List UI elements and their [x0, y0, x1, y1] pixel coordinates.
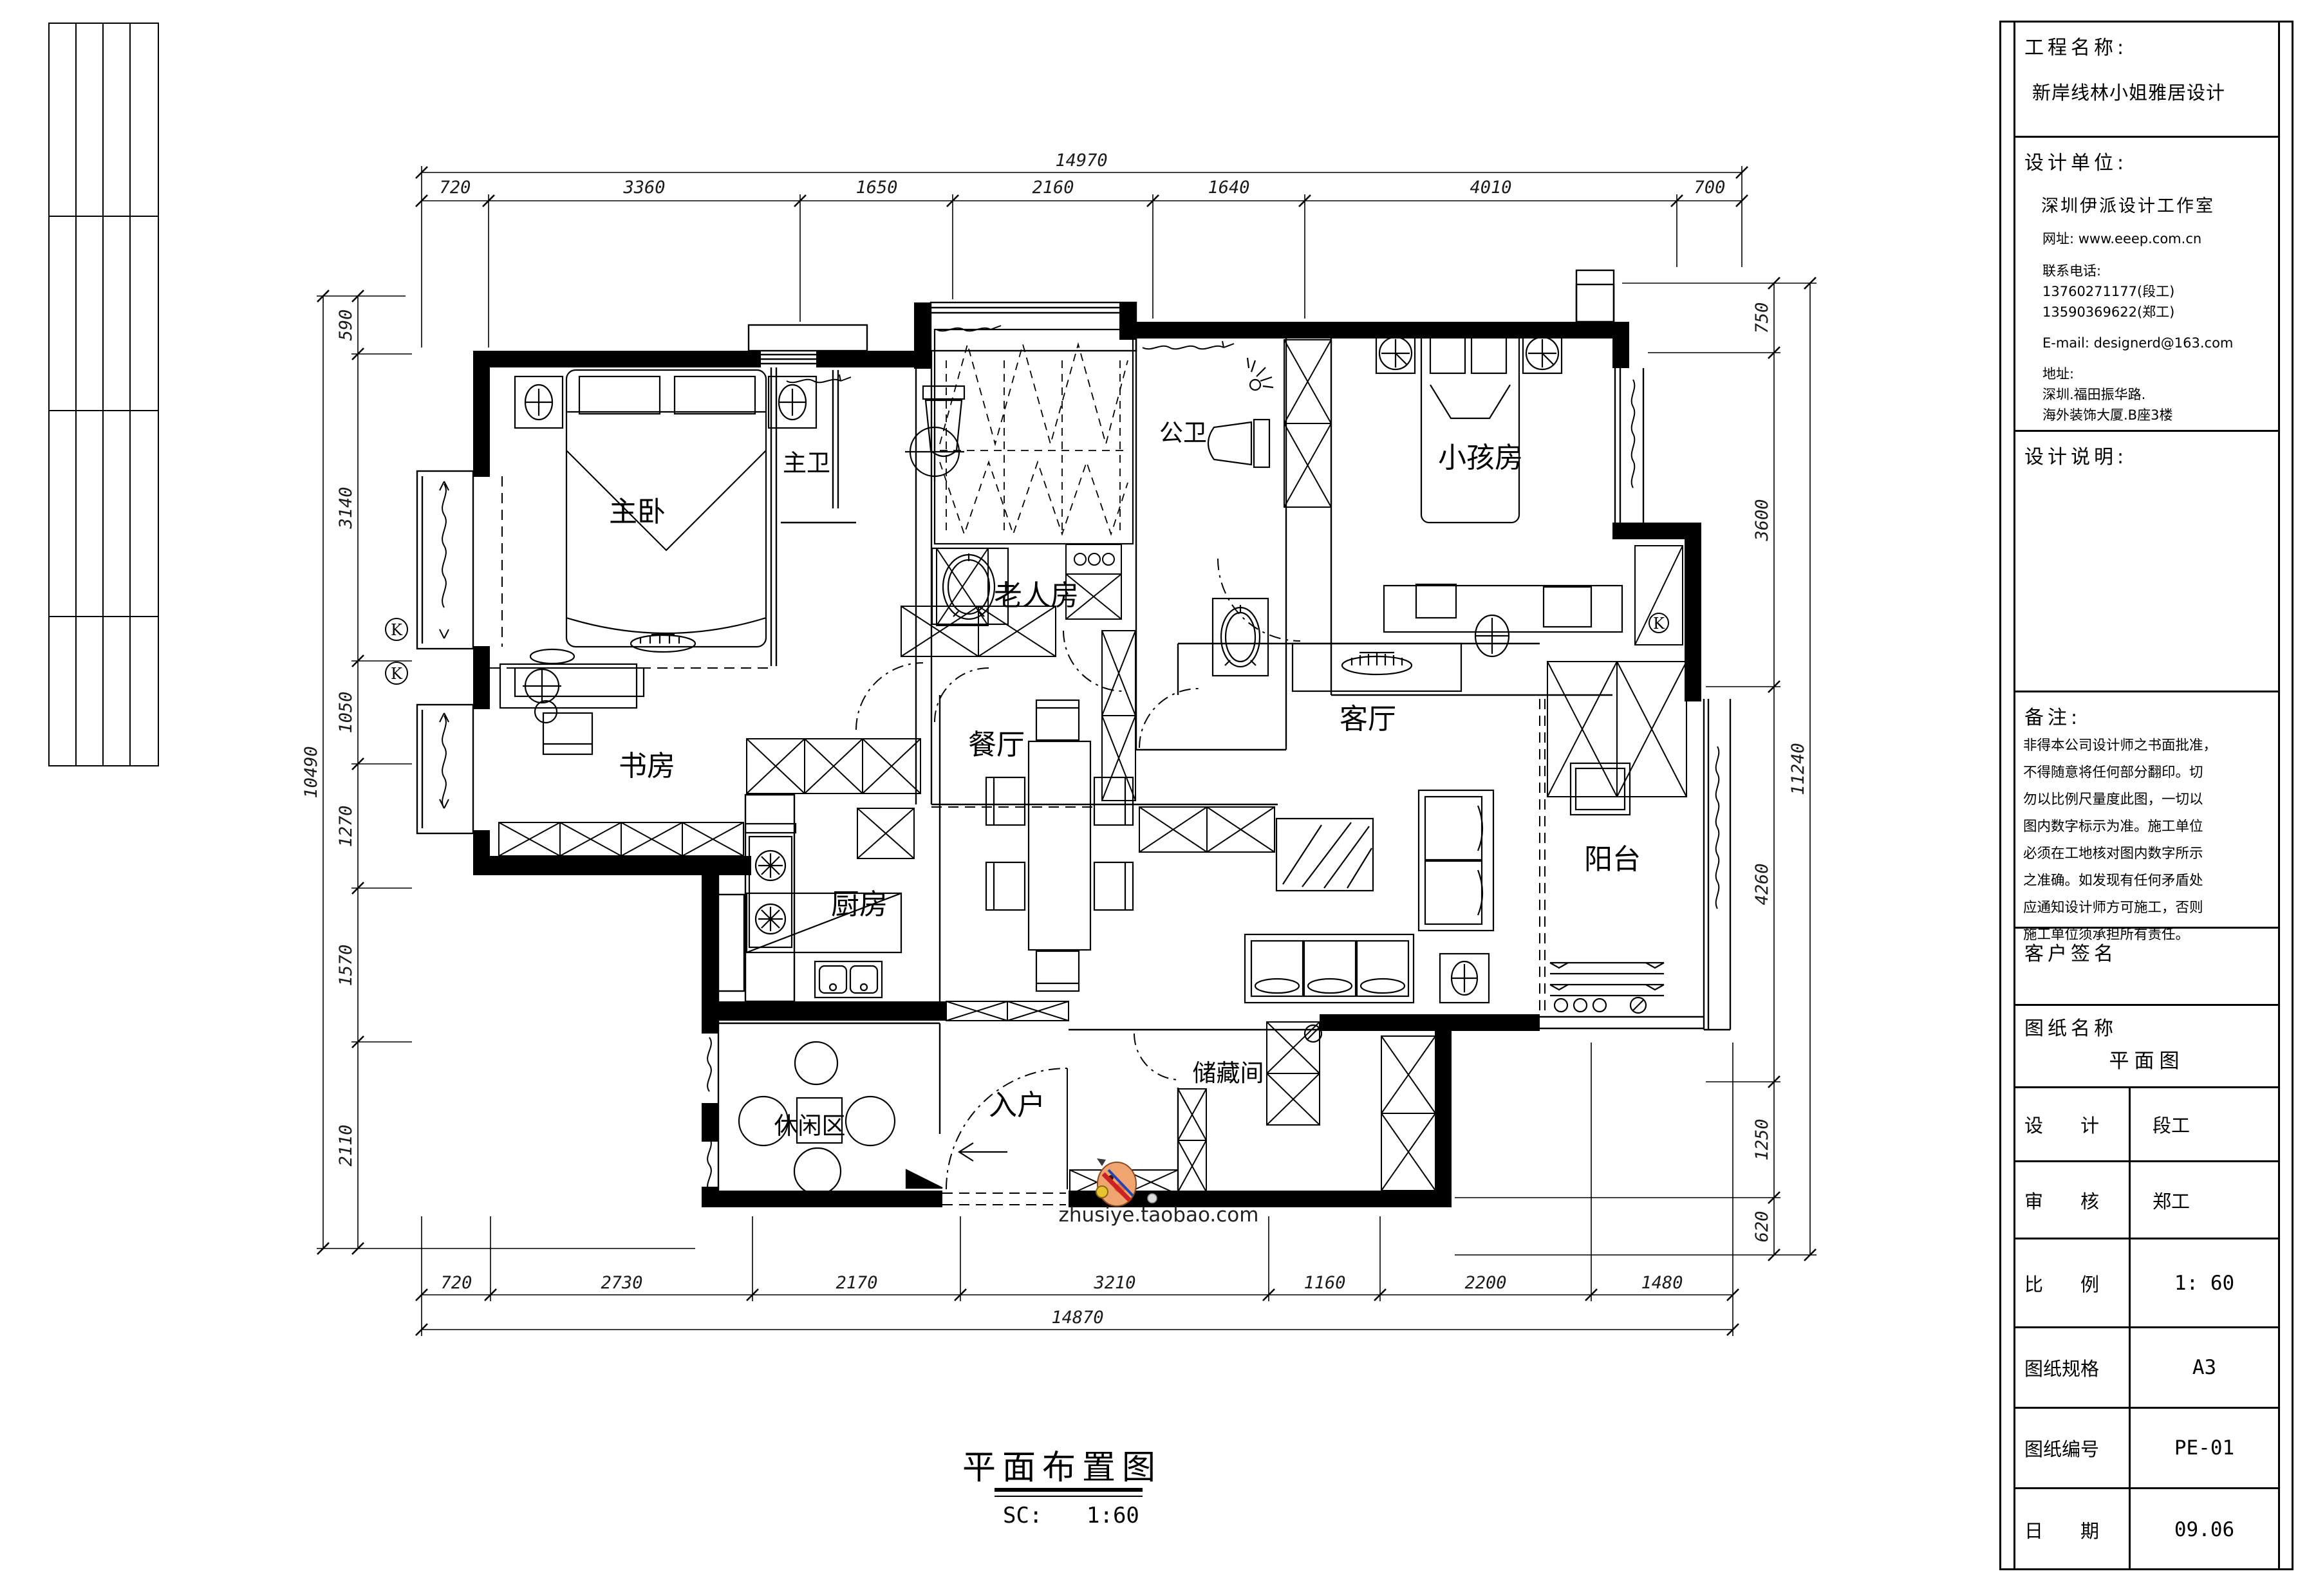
sheet-number-label: 图纸编号	[2015, 1409, 2131, 1487]
phone-1: 13760271177(段工)	[2015, 280, 2278, 301]
room-label-study: 书房	[619, 750, 675, 783]
dim-left-3: 1270	[336, 805, 356, 847]
dim-bottom-0: 720	[441, 1273, 472, 1293]
row-designer: 设 计 段工	[2015, 1088, 2278, 1160]
floor-plan-canvas: K K K 14970 7	[0, 0, 2298, 1596]
paper-size-label: 图纸规格	[2015, 1328, 2131, 1407]
room-label-balcony: 阳台	[1584, 843, 1641, 876]
scale-row-label: 比 例	[2015, 1239, 2131, 1326]
dim-bottom-2: 2170	[836, 1273, 877, 1293]
room-label-master: 主卧	[609, 496, 666, 528]
dim-right-4: 620	[1752, 1211, 1772, 1243]
scale-value: 1:60	[1087, 1503, 1139, 1528]
dim-left-4: 1570	[336, 944, 356, 986]
room-label-public-bath: 公卫	[1159, 419, 1207, 447]
project-name: 新岸线林小姐雅居设计	[2015, 60, 2278, 105]
design-unit-name: 深圳伊派设计工作室	[2015, 175, 2278, 217]
dim-top-6: 700	[1694, 178, 1726, 198]
k-mark-label-2: K	[391, 665, 403, 683]
sheet-name-value: 平面图	[2015, 1041, 2278, 1073]
remark-line: 图内数字标示为准。施工单位	[2015, 813, 2278, 840]
dim-right-1: 3600	[1752, 499, 1772, 541]
room-label-kids: 小孩房	[1438, 441, 1523, 474]
phone-2: 13590369622(郑工)	[2015, 301, 2278, 321]
auditor-value: 郑工	[2131, 1162, 2278, 1238]
title-block: 工程名称: 新岸线林小姐雅居设计 设计单位: 深圳伊派设计工作室 网址: www…	[2013, 21, 2280, 1570]
k-mark-symbols	[386, 613, 1668, 684]
room-label-master-bath: 主卫	[783, 449, 830, 477]
client-signature-section: 客户签名	[2015, 929, 2278, 1004]
address-line2: 海外装饰大厦.B座3楼	[2015, 404, 2278, 424]
scale-row-value: 1: 60	[2131, 1239, 2278, 1326]
remark-line: 非得本公司设计师之书面批准，	[2015, 732, 2278, 759]
design-unit-section: 设计单位: 深圳伊派设计工作室 网址: www.eeep.com.cn 联系电话…	[2015, 138, 2278, 430]
paper-size-value: A3	[2131, 1328, 2278, 1407]
room-label-dining: 餐厅	[968, 728, 1025, 761]
dim-bottom-3: 3210	[1093, 1273, 1135, 1293]
sheet-title: 平面布置图 SC: 1:60	[962, 1449, 1162, 1528]
elder-bed	[935, 329, 1133, 544]
email: E-mail: designerd@163.com	[2015, 321, 2278, 351]
dim-top-0: 720	[440, 178, 471, 198]
dim-bottom-total: 14870	[1051, 1308, 1103, 1328]
remark-label: 备注:	[2015, 692, 2278, 732]
door-arcs	[856, 559, 1300, 1189]
row-auditor: 审 核 郑工	[2015, 1162, 2278, 1238]
dim-right-total: 11240	[1788, 743, 1808, 795]
plan-title-text: 平面布置图	[962, 1449, 1162, 1487]
design-notes: 设计说明:	[2015, 432, 2278, 691]
row-scale: 比 例 1: 60	[2015, 1239, 2278, 1326]
project-label: 工程名称:	[2015, 23, 2278, 60]
sheet-name-section: 图纸名称 平面图	[2015, 1006, 2278, 1086]
dim-left-0: 590	[336, 310, 356, 341]
dim-top-4: 1640	[1208, 178, 1249, 198]
k-mark-label-3: K	[1653, 615, 1665, 633]
remark-line: 必须在工地核对图内数字所示	[2015, 840, 2278, 868]
dim-bottom-1: 2730	[601, 1273, 642, 1293]
room-label-leisure: 休闲区	[774, 1112, 846, 1140]
k-mark-label-1: K	[391, 621, 403, 639]
row-date: 日 期 09.06	[2015, 1489, 2278, 1570]
dim-right-2: 4260	[1752, 863, 1772, 905]
dim-right-0: 750	[1752, 302, 1772, 334]
scale-label: SC:	[1003, 1503, 1042, 1528]
design-notes-label: 设计说明:	[2015, 432, 2278, 469]
dim-left-5: 2110	[336, 1124, 356, 1166]
room-label-storage: 储藏间	[1193, 1059, 1264, 1087]
date-value: 09.06	[2131, 1489, 2278, 1570]
sheet-number-value: PE-01	[2131, 1409, 2278, 1487]
remark-line: 之准确。如发现有任何矛盾处	[2015, 868, 2278, 895]
dim-left-2: 1050	[336, 691, 356, 733]
dim-top-total: 14970	[1055, 151, 1107, 171]
pig-mascot-icon	[1096, 1158, 1157, 1206]
dim-left-1: 3140	[336, 487, 356, 529]
client-signature-label: 客户签名	[2015, 929, 2278, 966]
design-unit-website: 网址: www.eeep.com.cn	[2015, 217, 2278, 248]
project-section: 工程名称: 新岸线林小姐雅居设计	[2015, 23, 2278, 136]
remark-line: 勿以比例尺量度此图，一切以	[2015, 786, 2278, 813]
dim-bottom-4: 1160	[1303, 1273, 1345, 1293]
dim-top-3: 2160	[1032, 178, 1074, 198]
remarks-section: 备注: 非得本公司设计师之书面批准， 不得随意将任何部分翻印。切 勿以比例尺量度…	[2015, 692, 2278, 927]
dim-bottom-6: 1480	[1641, 1273, 1683, 1293]
room-label-entry: 入户	[989, 1089, 1045, 1122]
address-label: 地址:	[2015, 351, 2278, 383]
address-line1: 深圳.福田振华路.	[2015, 383, 2278, 404]
designer-label: 设 计	[2015, 1088, 2131, 1160]
dim-right-3: 1250	[1752, 1118, 1772, 1160]
dim-bottom-5: 2200	[1464, 1273, 1506, 1293]
date-label: 日 期	[2015, 1489, 2131, 1570]
dim-top-5: 4010	[1470, 178, 1511, 198]
remark-line: 应通知设计师方可施工，否则	[2015, 895, 2278, 922]
sheet-name-label: 图纸名称	[2015, 1006, 2278, 1041]
dim-top-1: 3360	[622, 178, 665, 198]
remark-line: 不得随意将任何部分翻印。切	[2015, 759, 2278, 786]
drawing-sheet: K K K 14970 7	[0, 0, 2298, 1596]
design-unit-label: 设计单位:	[2015, 138, 2278, 175]
room-label-living: 客厅	[1340, 703, 1396, 736]
partitions	[417, 270, 1730, 1191]
dim-top-2: 1650	[855, 178, 897, 198]
auditor-label: 审 核	[2015, 1162, 2131, 1238]
phone-label: 联系电话:	[2015, 248, 2278, 280]
dim-left-total: 10490	[301, 746, 321, 798]
room-label-elder: 老人房	[994, 579, 1079, 612]
row-paper-size: 图纸规格 A3	[2015, 1328, 2278, 1407]
row-sheet-number: 图纸编号 PE-01	[2015, 1409, 2278, 1487]
designer-value: 段工	[2131, 1088, 2278, 1160]
room-label-kitchen: 厨房	[831, 888, 888, 921]
watermark-text: zhusiye.taobao.com	[1059, 1203, 1259, 1227]
